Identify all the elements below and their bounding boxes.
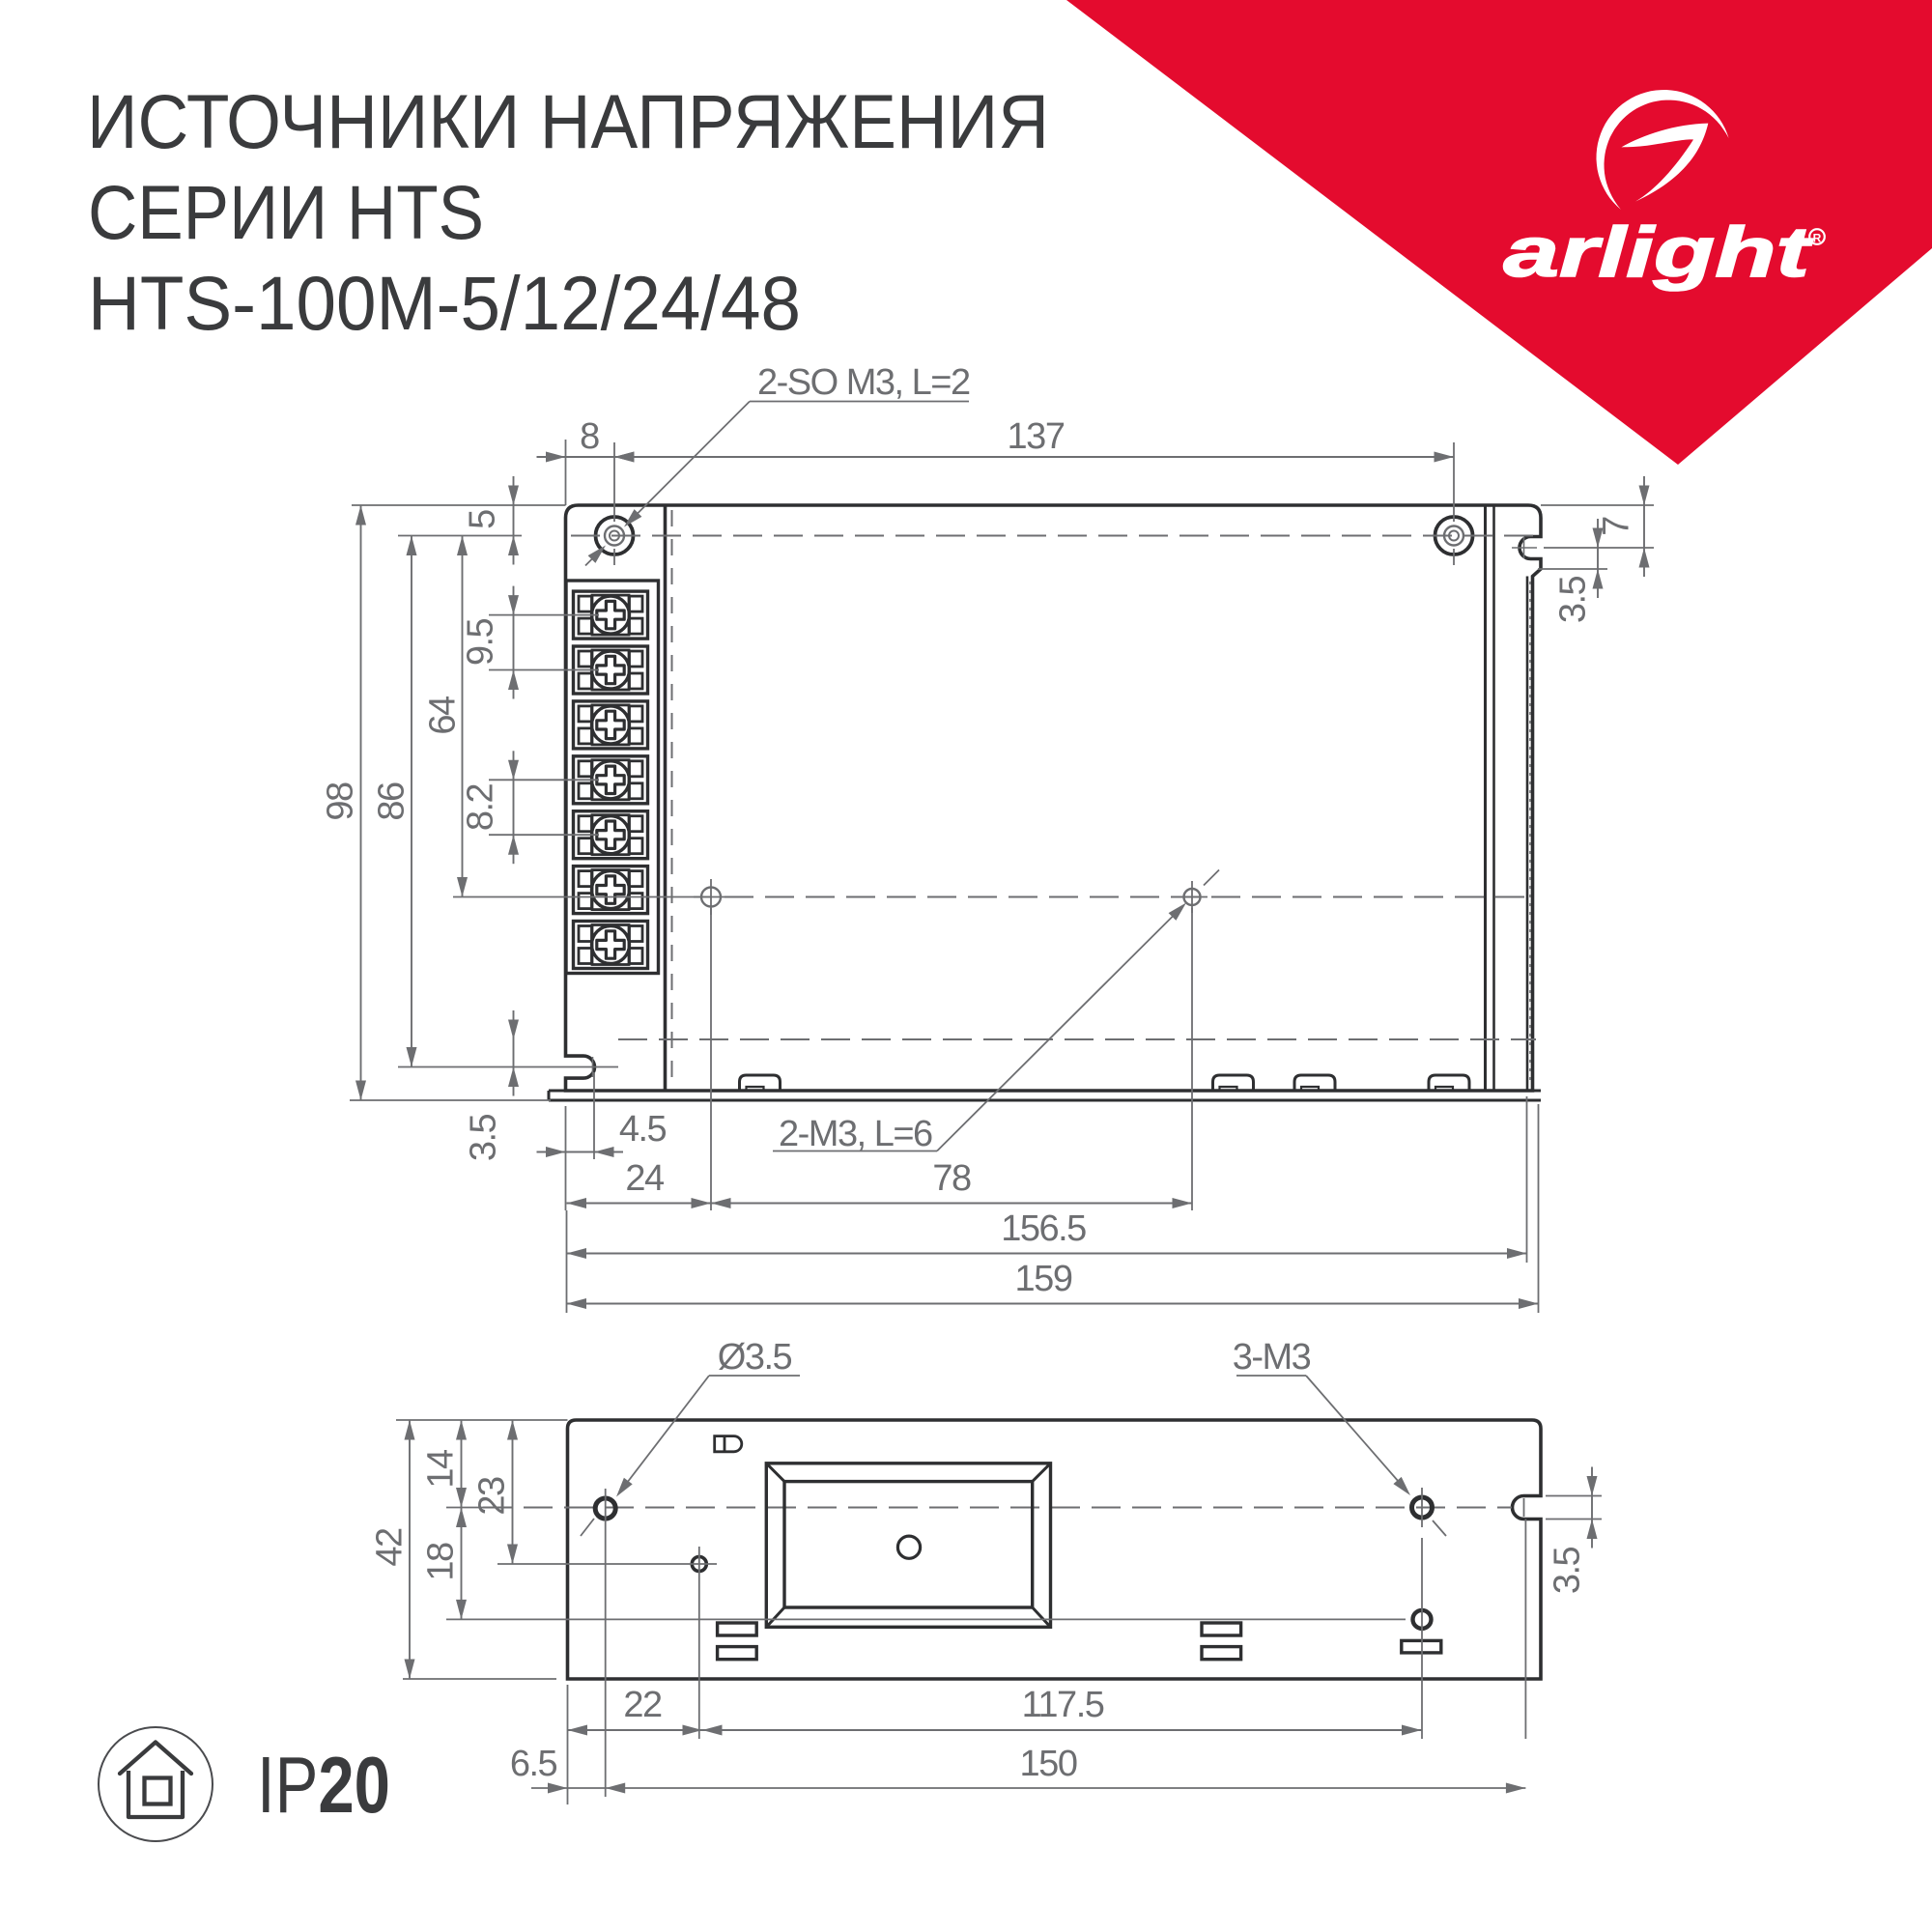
svg-text:R: R (1813, 232, 1822, 245)
svg-text:8.2: 8.2 (461, 783, 501, 831)
svg-text:HTS-100M-5/12/24/48: HTS-100M-5/12/24/48 (88, 260, 801, 346)
svg-text:Ø3.5: Ø3.5 (718, 1337, 792, 1378)
svg-text:3.5: 3.5 (464, 1114, 504, 1161)
svg-text:3.5: 3.5 (1548, 1547, 1588, 1594)
svg-text:137: 137 (1008, 416, 1065, 457)
svg-text:64: 64 (423, 696, 464, 735)
svg-text:8: 8 (580, 416, 599, 457)
svg-text:159: 159 (1015, 1259, 1072, 1299)
svg-text:2-M3, L=6: 2-M3, L=6 (779, 1114, 932, 1154)
svg-text:22: 22 (623, 1685, 662, 1725)
svg-text:arlight: arlight (1503, 213, 1812, 291)
svg-text:5: 5 (463, 510, 503, 529)
svg-text:24: 24 (625, 1158, 665, 1199)
svg-text:3.5: 3.5 (1553, 576, 1594, 623)
svg-text:78: 78 (932, 1158, 971, 1199)
svg-text:86: 86 (372, 782, 412, 821)
svg-text:3-M3: 3-M3 (1233, 1337, 1311, 1378)
svg-text:150: 150 (1020, 1744, 1077, 1784)
svg-text:98: 98 (321, 782, 361, 821)
svg-text:9.5: 9.5 (461, 618, 501, 666)
svg-text:14: 14 (421, 1449, 462, 1489)
svg-text:ИСТОЧНИКИ НАПРЯЖЕНИЯ: ИСТОЧНИКИ НАПРЯЖЕНИЯ (87, 78, 1049, 164)
svg-text:23: 23 (472, 1477, 513, 1516)
svg-text:117.5: 117.5 (1022, 1685, 1104, 1725)
svg-text:42: 42 (370, 1528, 411, 1567)
svg-text:IP20: IP20 (257, 1740, 390, 1830)
svg-text:18: 18 (421, 1543, 462, 1581)
svg-text:156.5: 156.5 (1001, 1208, 1086, 1249)
svg-text:СЕРИИ HTS: СЕРИИ HTS (88, 169, 484, 255)
svg-text:4.5: 4.5 (619, 1109, 667, 1150)
svg-text:7: 7 (1597, 517, 1637, 536)
svg-text:2-SO M3, L=2: 2-SO M3, L=2 (757, 362, 970, 403)
svg-text:6.5: 6.5 (510, 1744, 557, 1784)
